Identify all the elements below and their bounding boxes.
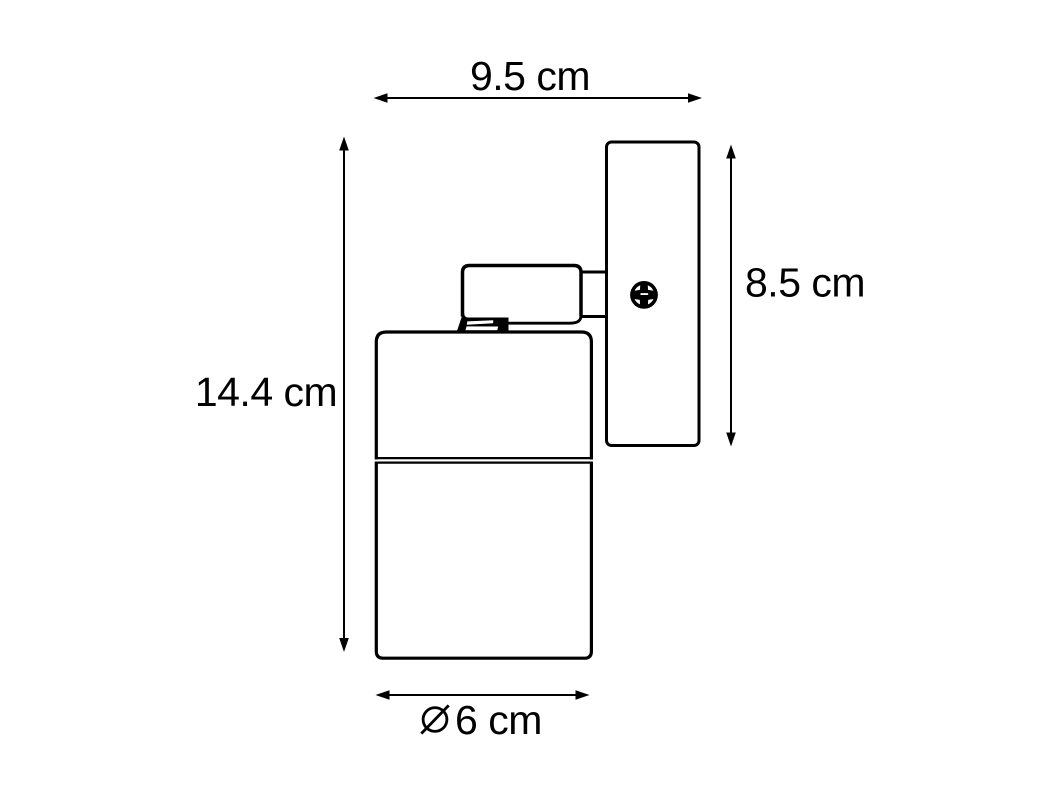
svg-text:8.5 cm: 8.5 cm	[745, 260, 865, 306]
svg-text:6 cm: 6 cm	[455, 697, 542, 743]
svg-text:14.4 cm: 14.4 cm	[195, 369, 337, 415]
svg-text:9.5 cm: 9.5 cm	[470, 53, 590, 99]
